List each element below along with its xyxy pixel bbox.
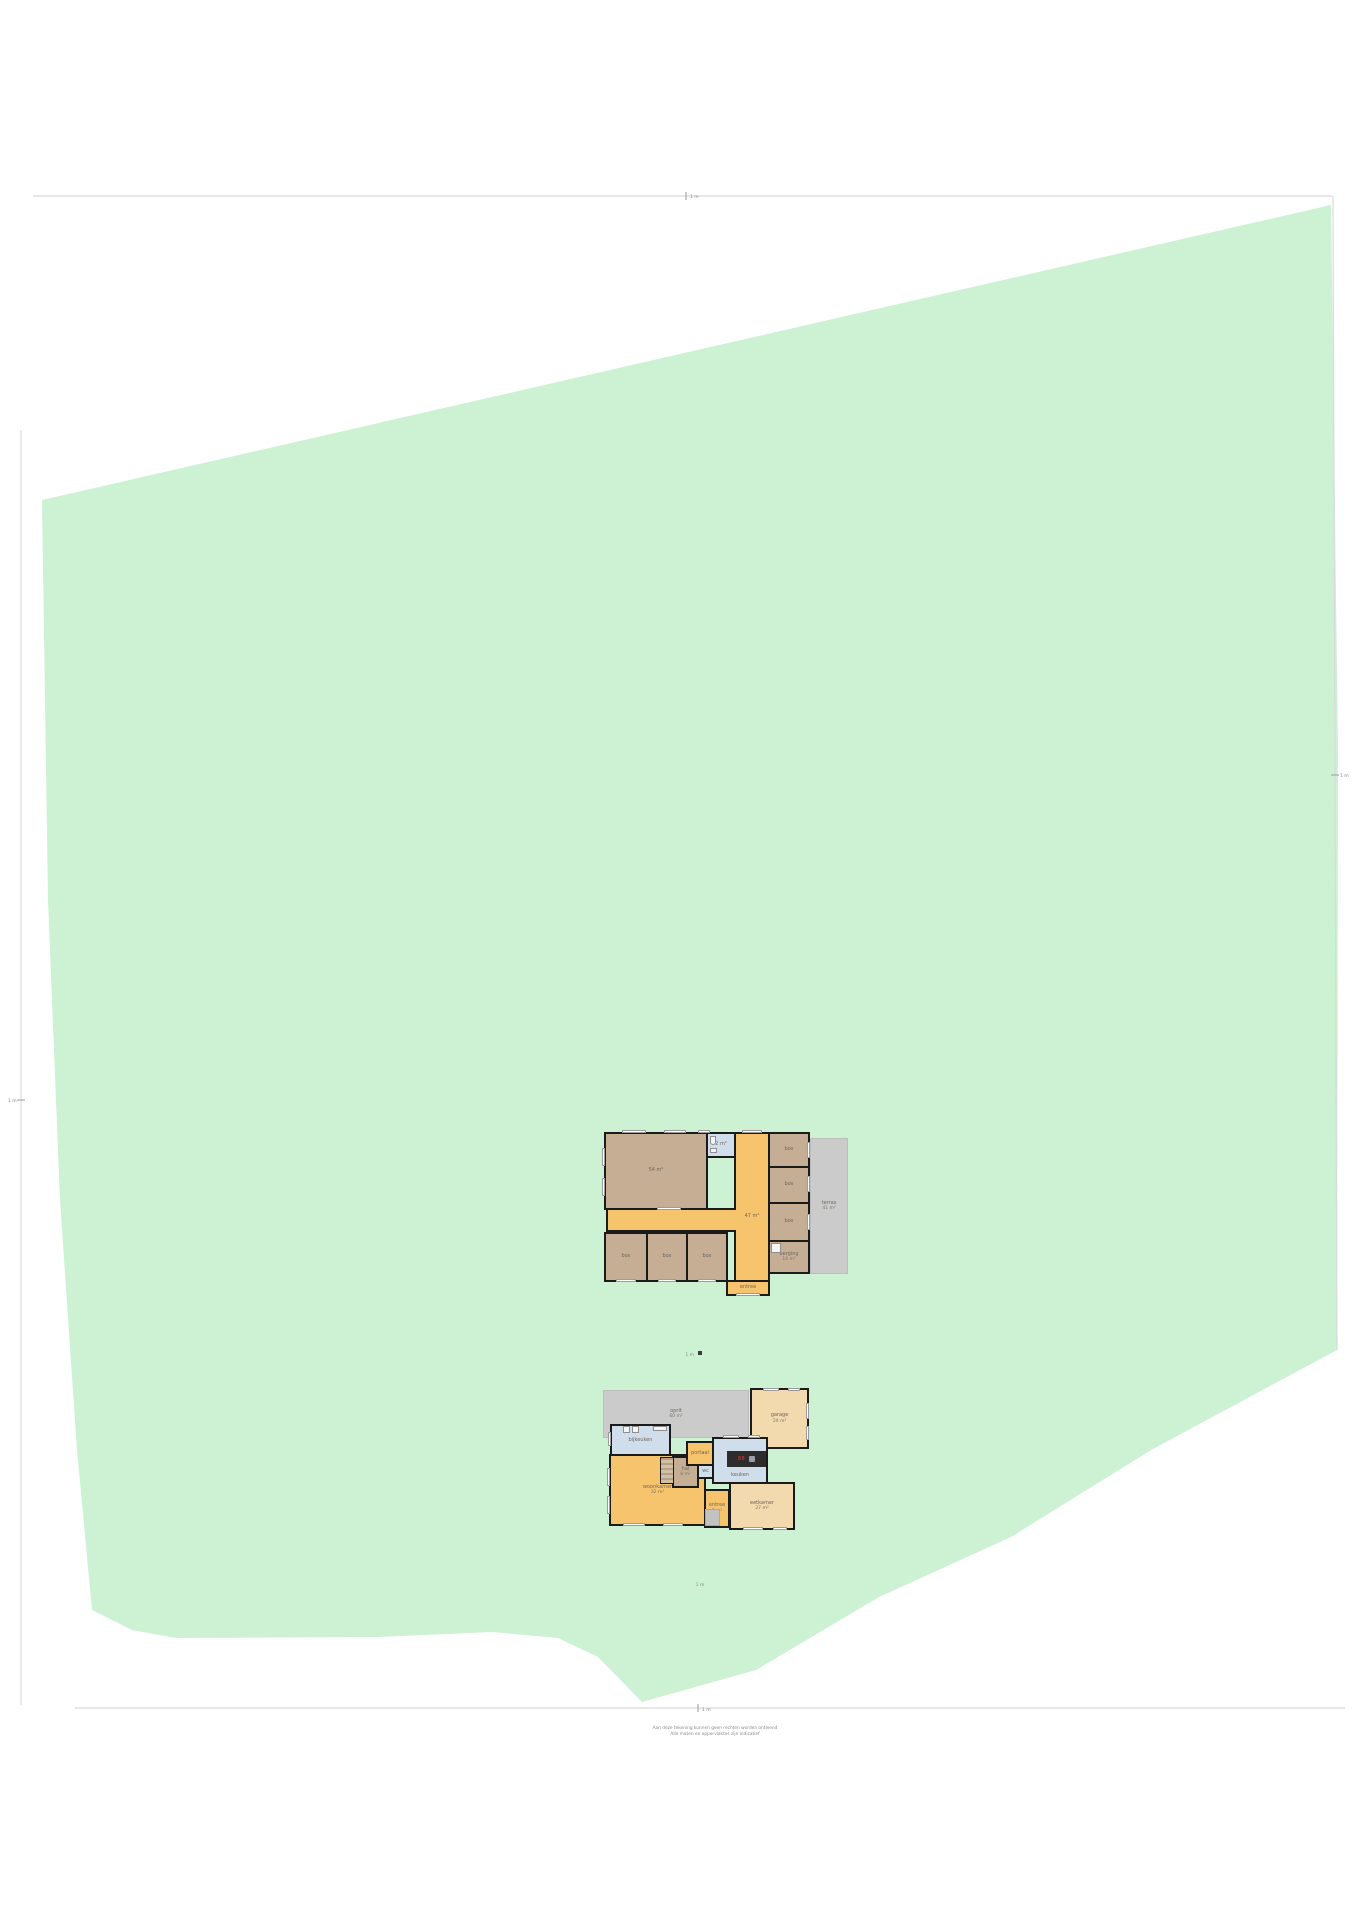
plan2-scale-label: 1 m <box>696 1582 705 1588</box>
room-box-b2: box <box>646 1232 688 1282</box>
berging-fixture <box>771 1243 781 1253</box>
window <box>788 1388 800 1391</box>
window <box>698 1279 716 1282</box>
plan-woonhuis: oprit60 m² garage24 m² bijkeuken woonkam… <box>603 1388 809 1534</box>
window <box>622 1130 646 1133</box>
stairs <box>660 1457 674 1484</box>
window <box>602 1148 605 1166</box>
window <box>773 1527 787 1530</box>
room-eetkamer: eetkamer27 m² <box>729 1482 795 1530</box>
window <box>607 1496 610 1514</box>
toilet-icon <box>710 1136 716 1145</box>
room-stal-groot: 54 m² <box>604 1132 708 1210</box>
room-box-r3: box <box>768 1202 810 1242</box>
room-box-b1: box <box>604 1232 648 1282</box>
sink-icon <box>710 1148 717 1153</box>
room-box-b3: box <box>686 1232 728 1282</box>
window <box>623 1523 645 1526</box>
plan1-scale-marker <box>698 1351 702 1355</box>
disclaimer-line2: Alle maten en oppervlaktes zijn indicati… <box>670 1731 760 1737</box>
washer-icon <box>623 1426 630 1433</box>
window <box>748 1435 760 1438</box>
tick-top-label: 1 m <box>690 194 699 200</box>
window <box>806 1403 809 1419</box>
window <box>664 1130 686 1133</box>
doormat <box>705 1509 720 1526</box>
window <box>763 1388 779 1391</box>
tick-bottom-label: 1 m <box>702 1707 711 1713</box>
dryer-icon <box>632 1426 639 1433</box>
window <box>807 1214 810 1230</box>
tick-right-label: 1 m <box>1340 773 1349 779</box>
tick-left-label: 1 m <box>8 1098 17 1104</box>
window <box>743 1527 763 1530</box>
plan1-scale-label: 1 m <box>685 1352 694 1358</box>
window <box>807 1142 810 1158</box>
window <box>742 1130 762 1133</box>
window <box>608 1432 611 1446</box>
counter <box>653 1426 667 1431</box>
disclaimer-line1: Aan deze tekening kunnen geen rechten wo… <box>653 1725 778 1731</box>
window <box>723 1435 739 1438</box>
site-plan: 1 m 1 m 1 m 1 m 1 m 1 m Aan deze tekenin… <box>0 0 1358 1920</box>
sink-icon <box>749 1456 755 1462</box>
floorplan-page: 1 m 1 m 1 m 1 m 1 m 1 m Aan deze tekenin… <box>0 0 1358 1920</box>
window <box>607 1468 610 1486</box>
window <box>657 1207 681 1210</box>
room-gang-horizontaal <box>606 1208 736 1232</box>
room-gang: 47 m² <box>734 1132 770 1282</box>
window <box>698 1130 710 1133</box>
window <box>736 1293 760 1296</box>
plan-schuur: terras41 m² 54 m² 2 m² 47 m² entree box … <box>602 1130 848 1296</box>
window <box>663 1523 683 1526</box>
window <box>602 1178 605 1196</box>
room-box-r1: box <box>768 1132 810 1168</box>
room-box-r2: box <box>768 1166 810 1204</box>
window <box>616 1279 636 1282</box>
room-portaal: portaal <box>686 1441 714 1466</box>
oven-display: 88 <box>738 1456 745 1462</box>
kitchen-island: 88 <box>727 1451 766 1467</box>
window <box>658 1279 676 1282</box>
window <box>806 1426 809 1440</box>
window <box>807 1176 810 1192</box>
room-terras: terras41 m² <box>810 1138 848 1274</box>
